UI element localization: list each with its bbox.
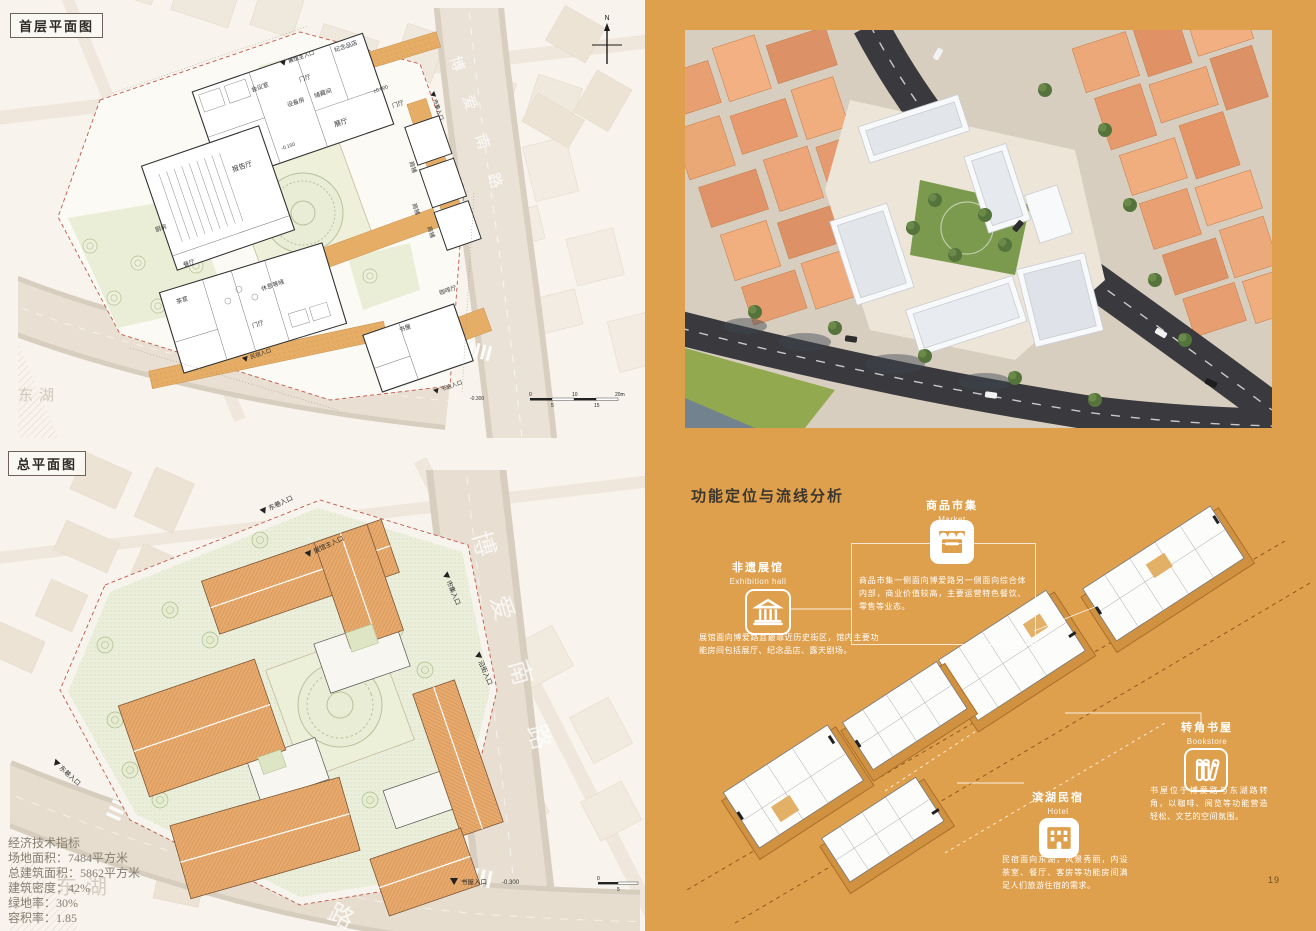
svg-text:20m: 20m (615, 392, 625, 398)
hotel-building-icon (1039, 818, 1079, 858)
stats-line: 容积率：1.85 (8, 911, 218, 926)
svg-text:0: 0 (529, 392, 532, 398)
svg-text:15: 15 (594, 403, 600, 409)
hotel-description: 民宿面向东湖，风景秀丽，内设茶室、餐厅、客房等功能房间满足人们旅游住宿的需求。 (1002, 854, 1128, 893)
hotel-label: 滨湖民宿 Hotel (1008, 789, 1108, 816)
svg-text:-0.300: -0.300 (470, 396, 484, 402)
function-analysis-section: 功能定位与流线分析 商品市集 Market 商品市集一侧面向博爱路另一侧面向综合… (645, 461, 1316, 931)
plan2-title: 总平面图 (8, 451, 86, 476)
stats-line: 经济技术指标 (8, 836, 218, 851)
market-description: 商品市集一侧面向博爱路另一侧面向综合体内部，商业价值较高，主要运营特色餐饮、零售… (859, 575, 1026, 614)
bookstore-label: 转角书屋 Bookstore (1157, 719, 1257, 746)
plans-panel: 东湖 博爱南路 东湖路 (0, 0, 645, 931)
exhibition-description: 展馆面向博爱路且最靠近历史街区，馆内主要功能房间包括展厅、纪念品店、露天剧场。 (699, 632, 879, 658)
svg-text:-0.300: -0.300 (502, 880, 520, 886)
exhibition-name-en: Exhibition hall (703, 577, 813, 586)
presentation-board: 东湖 博爱南路 东湖路 (0, 0, 1316, 931)
analysis-heading: 功能定位与流线分析 (691, 485, 844, 506)
north-arrow-icon: N (592, 15, 622, 64)
svg-text:5: 5 (551, 403, 554, 409)
svg-text:书屋入口: 书屋入口 (461, 877, 487, 886)
stats-line: 绿地率：30% (8, 896, 218, 911)
lake-label: 东湖 (18, 387, 60, 404)
analysis-panel: 功能定位与流线分析 商品市集 Market 商品市集一侧面向博爱路另一侧面向综合… (645, 0, 1316, 931)
axon-cluster-market (1078, 503, 1255, 653)
exhibition-name: 非遗展馆 (732, 562, 784, 574)
bookstore-name-en: Bookstore (1157, 737, 1257, 746)
axon-diagram (645, 461, 1316, 931)
stats-line: 总建筑面积：5862平方米 (8, 866, 218, 881)
hotel-name: 滨湖民宿 (1032, 792, 1084, 804)
stats-line: 建筑密度：42% (8, 881, 218, 896)
plan1-title: 首层平面图 (10, 13, 103, 38)
market-name: 商品市集 (926, 500, 978, 512)
technical-indicators: 经济技术指标 场地面积：7484平方米 总建筑面积：5862平方米 建筑密度：4… (8, 836, 218, 926)
exhibition-label: 非遗展馆 Exhibition hall (703, 559, 813, 586)
svg-text:5: 5 (617, 887, 620, 893)
svg-text:10: 10 (572, 392, 578, 398)
svg-text:东巷入口: 东巷入口 (267, 493, 294, 512)
aerial-render (685, 30, 1272, 428)
page-number: 19 (1268, 875, 1280, 885)
museum-icon (745, 589, 791, 635)
hotel-name-en: Hotel (1008, 807, 1108, 816)
bookstore-description: 书屋位于博爱路与东湖路转角，以咖啡、阅览等功能营造轻松、文艺的空间氛围。 (1150, 785, 1268, 824)
bookstore-name: 转角书屋 (1181, 722, 1233, 734)
first-floor-plan: 东湖 博爱南路 东湖路 (18, 8, 633, 438)
stats-line: 场地面积：7484平方米 (8, 851, 218, 866)
svg-text:N: N (604, 15, 609, 22)
svg-text:0: 0 (597, 876, 600, 882)
